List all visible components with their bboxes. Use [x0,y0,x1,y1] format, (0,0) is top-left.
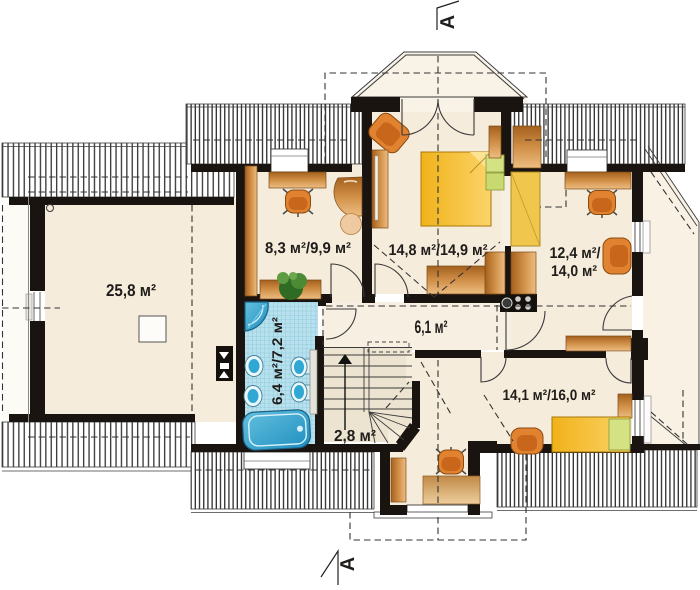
svg-text:14,8 м²/14,9 м²: 14,8 м²/14,9 м² [389,242,488,259]
svg-text:12,4 м²/: 12,4 м²/ [550,245,602,262]
svg-text:A: A [337,557,359,571]
svg-text:14,1 м²/16,0 м²: 14,1 м²/16,0 м² [503,387,596,404]
svg-text:2,8 м²: 2,8 м² [334,428,376,445]
svg-text:14,0 м²: 14,0 м² [551,263,597,280]
svg-text:25,8 м²: 25,8 м² [106,281,156,300]
svg-text:A: A [437,15,459,29]
svg-text:8,3 м²/9,9 м²: 8,3 м²/9,9 м² [265,240,351,257]
svg-text:6,4 м²/7,2 м²: 6,4 м²/7,2 м² [269,317,285,405]
svg-text:6,1 м²: 6,1 м² [415,317,448,337]
